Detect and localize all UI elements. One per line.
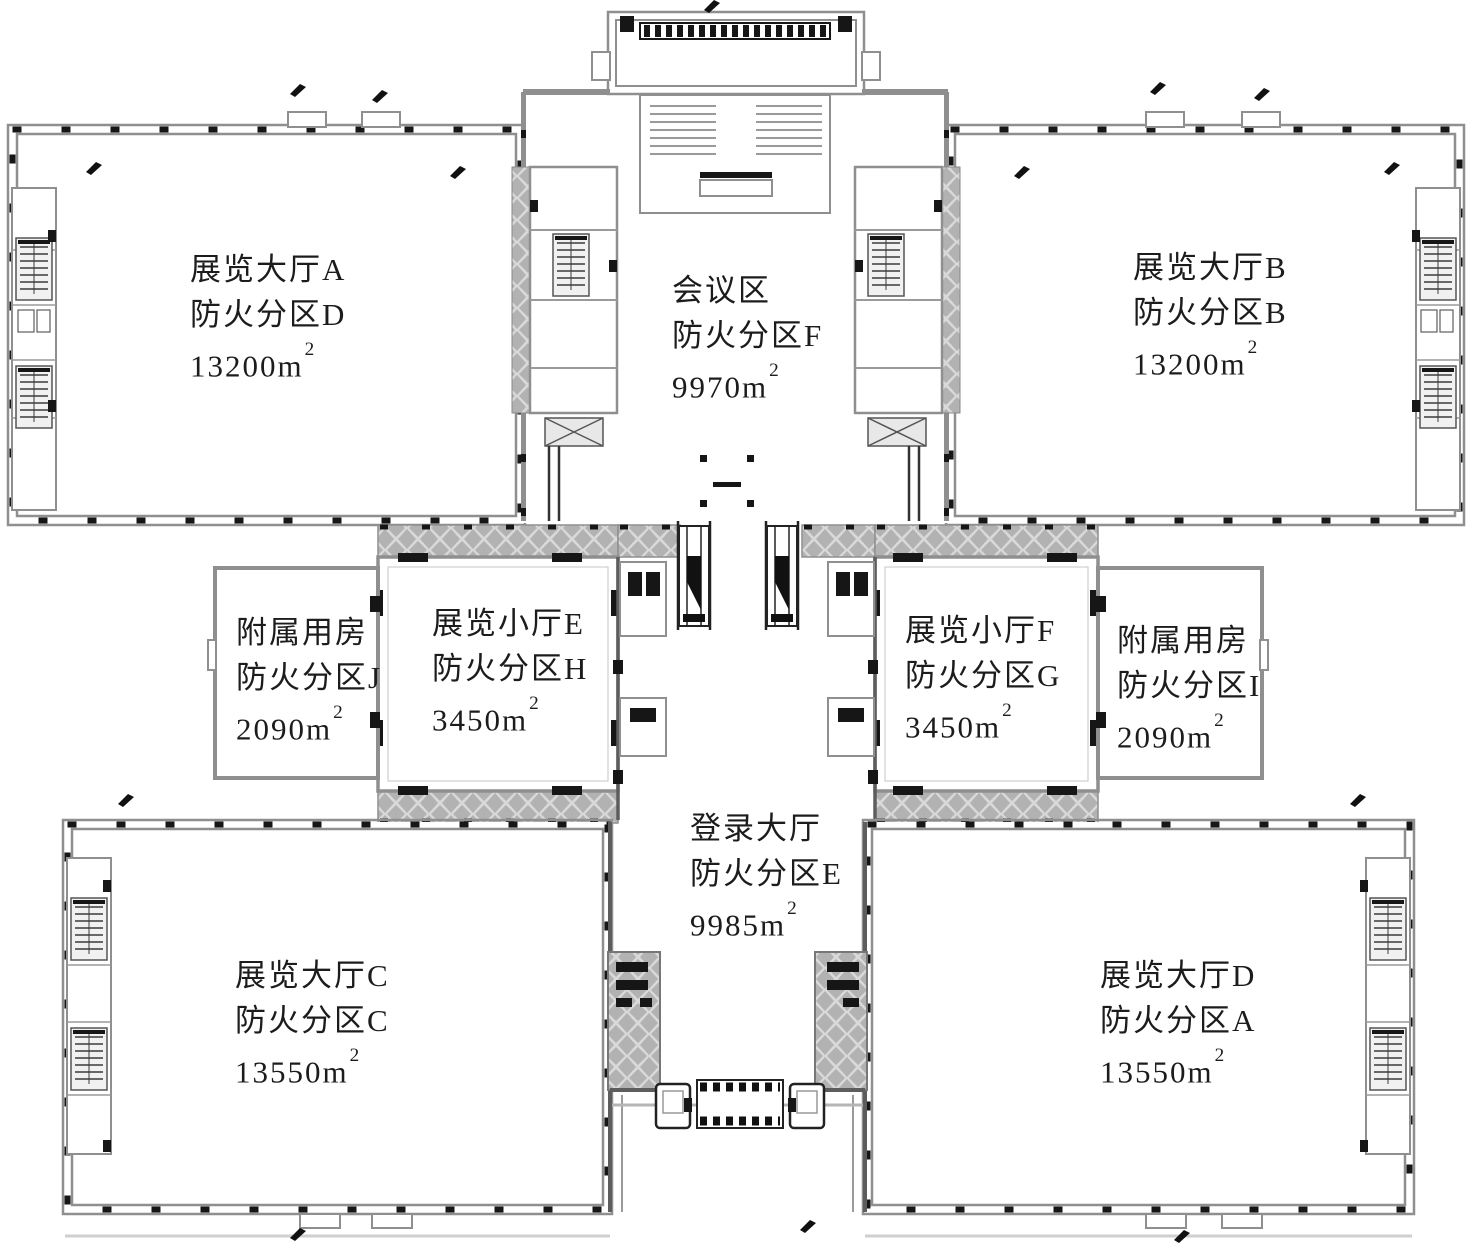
room-label-aux-j: 附属用房 防火分区J 2090m2	[236, 610, 382, 751]
floor-plan-page: 展览大厅A 防火分区D 13200m2 会议区 防火分区F 9970m2 展览大…	[0, 0, 1471, 1244]
canopy	[1146, 112, 1184, 127]
canopy	[300, 1214, 340, 1228]
room-label-hall-b: 展览大厅B 防火分区B 13200m2	[1133, 245, 1288, 386]
stairs-icon	[1370, 898, 1406, 960]
canopy	[362, 112, 400, 127]
room-name: 展览小厅F	[905, 608, 1061, 653]
fire-zone: 防火分区F	[672, 313, 823, 358]
elevator-core	[828, 562, 874, 756]
room-name: 会议区	[672, 268, 823, 313]
room-label-hall-d: 展览大厅D 防火分区A 13550m2	[1100, 953, 1256, 1094]
room-name: 登录大厅	[690, 806, 843, 851]
elevator-icon	[1421, 310, 1437, 332]
room-label-aux-i: 附属用房 防火分区I 2090m2	[1117, 618, 1261, 759]
room-name: 展览大厅B	[1133, 245, 1288, 290]
stairs-icon	[1370, 1028, 1406, 1090]
stairs-icon	[1420, 366, 1456, 428]
room-label-small-f: 展览小厅F 防火分区G 3450m2	[905, 608, 1061, 749]
canopy	[1222, 1214, 1262, 1228]
restroom-core	[815, 952, 867, 1090]
elevator-core	[620, 562, 666, 756]
room-label-lobby: 登录大厅 防火分区E 9985m2	[690, 806, 843, 947]
escalator-icon	[679, 526, 709, 626]
canopy	[1146, 1214, 1186, 1228]
room-area: 3450m2	[432, 691, 588, 742]
room-area: 13550m2	[1100, 1043, 1256, 1094]
hall-b-stair-band	[1412, 188, 1460, 510]
room-label-small-e: 展览小厅E 防火分区H 3450m2	[432, 601, 588, 742]
stairs-icon	[16, 366, 52, 428]
auditorium-seating	[650, 106, 716, 154]
elevator-icon	[18, 310, 34, 332]
central-corridor-structure	[613, 521, 878, 820]
fire-zone: 防火分区A	[1100, 998, 1256, 1043]
hall-c-stair-band	[67, 858, 111, 1154]
room-name: 附属用房	[1117, 618, 1261, 663]
elevator-icon	[1440, 310, 1453, 332]
fire-zone: 防火分区H	[432, 646, 588, 691]
fire-zone: 防火分区J	[236, 655, 382, 700]
fire-zone: 防火分区C	[235, 998, 390, 1043]
room-name: 附属用房	[236, 610, 382, 655]
fire-zone: 防火分区I	[1117, 663, 1261, 708]
stairs-icon	[1420, 238, 1456, 300]
fire-zone: 防火分区D	[190, 292, 346, 337]
hall-d-stair-band	[1360, 858, 1410, 1154]
room-area: 9985m2	[690, 896, 843, 947]
room-label-hall-a: 展览大厅A 防火分区D 13200m2	[190, 247, 346, 388]
room-area: 13200m2	[1133, 335, 1288, 386]
room-name: 展览小厅E	[432, 601, 588, 646]
room-name: 展览大厅D	[1100, 953, 1256, 998]
elevator-icon	[37, 310, 50, 332]
fire-zone: 防火分区G	[905, 653, 1061, 698]
room-area: 2090m2	[236, 700, 382, 751]
stage	[700, 172, 772, 178]
room-label-conference: 会议区 防火分区F 9970m2	[672, 268, 823, 409]
room-name: 展览大厅C	[235, 953, 390, 998]
room-name: 展览大厅A	[190, 247, 346, 292]
stairs-icon	[868, 234, 904, 296]
room-area: 3450m2	[905, 698, 1061, 749]
room-label-hall-c: 展览大厅C 防火分区C 13550m2	[235, 953, 390, 1094]
hall-a-stair-band	[12, 188, 56, 510]
fire-zone: 防火分区B	[1133, 290, 1288, 335]
room-area: 9970m2	[672, 358, 823, 409]
restroom-core	[608, 952, 660, 1090]
canopy	[1242, 112, 1280, 127]
room-area: 13550m2	[235, 1043, 390, 1094]
stairs-icon	[16, 238, 52, 300]
room-area: 13200m2	[190, 337, 346, 388]
fire-zone: 防火分区E	[690, 851, 843, 896]
stairs-icon	[71, 898, 107, 960]
escalator-icon	[767, 526, 797, 626]
stairs-icon	[71, 1028, 107, 1090]
stairs-icon	[553, 234, 589, 296]
canopy	[288, 112, 326, 127]
canopy	[372, 1214, 412, 1228]
room-area: 2090m2	[1117, 708, 1261, 759]
